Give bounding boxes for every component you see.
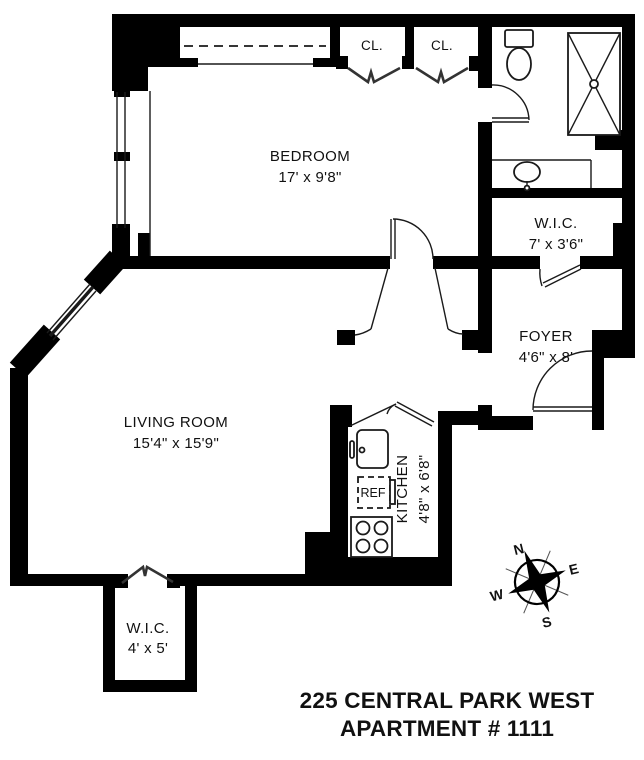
bedroom-door <box>391 219 433 259</box>
toilet <box>505 30 533 80</box>
wic-lower-dims: 4' x 5' <box>128 640 168 657</box>
compass-south-label: S <box>540 613 553 631</box>
stove <box>351 517 392 557</box>
shower <box>568 33 620 135</box>
hall-door-right <box>435 268 463 334</box>
compass-north-label: N <box>512 540 526 558</box>
compass-rose-icon: N E W S <box>488 539 580 631</box>
bathroom <box>492 30 620 190</box>
compass-west-label: W <box>488 585 505 604</box>
refrigerator: REF <box>358 477 395 508</box>
refrigerator-label: REF <box>361 486 386 500</box>
kitchen-door <box>350 402 434 426</box>
bedroom-closet-dashed <box>184 46 326 64</box>
bay-window-diagonal <box>47 284 96 340</box>
bedroom-dims: 17' x 9'8" <box>278 169 341 186</box>
compass-east-label: E <box>567 560 580 578</box>
bathroom-door <box>492 85 529 122</box>
wic-upper-label: W.I.C. <box>534 215 577 232</box>
kitchen-dims: 4'8" x 6'8" <box>416 455 433 524</box>
wic-upper-door <box>540 265 581 287</box>
address-line-2: APARTMENT # 1111 <box>340 716 554 741</box>
kitchen-fixtures: REF <box>350 430 395 557</box>
closet-right-label: CL. <box>431 38 453 53</box>
foyer-dims: 4'6" x 8' <box>519 349 574 366</box>
wic-upper-dims: 7' x 3'6" <box>529 236 584 253</box>
kitchen-sink <box>350 430 388 468</box>
address-line-1: 225 CENTRAL PARK WEST <box>300 688 595 713</box>
closet-left-label: CL. <box>361 38 383 53</box>
plan-title: 225 CENTRAL PARK WEST APARTMENT # 1111 <box>300 688 595 741</box>
floor-plan-canvas: REF BEDROOM 17' x 9'8" CL. CL. W.I.C. 7'… <box>0 0 644 760</box>
kitchen-label: KITCHEN <box>394 455 411 524</box>
living-room-dims: 15'4" x 15'9" <box>133 435 219 452</box>
living-room-label: LIVING ROOM <box>124 414 228 431</box>
doors <box>350 85 592 426</box>
bathroom-sink <box>492 160 591 190</box>
hall-door-left <box>355 268 388 335</box>
foyer-label: FOYER <box>519 328 573 345</box>
floor-plan-page: REF BEDROOM 17' x 9'8" CL. CL. W.I.C. 7'… <box>0 0 644 760</box>
wic-lower-label: W.I.C. <box>126 620 169 637</box>
bedroom-label: BEDROOM <box>270 148 350 165</box>
